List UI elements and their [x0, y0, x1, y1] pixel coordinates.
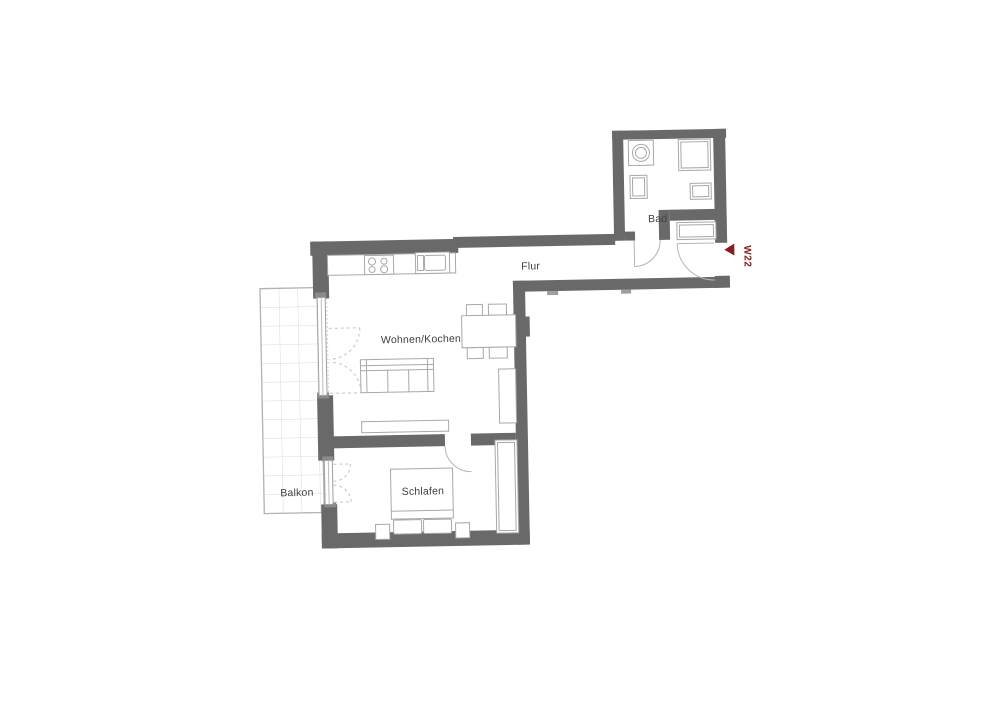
- room-label-balkon: Balkon: [280, 487, 314, 500]
- balcony: [260, 288, 324, 514]
- living-french-door-lower: [329, 362, 361, 394]
- chair: [467, 347, 483, 358]
- living-french-door-upper: [329, 328, 361, 360]
- wall-left-mid: [317, 395, 334, 460]
- bathroom-fixtures: [628, 139, 716, 241]
- unit-marker: W22: [724, 243, 752, 268]
- wall-entry-corner: [715, 276, 730, 288]
- entrance-door-swing: [677, 243, 715, 281]
- dining-table: [462, 315, 517, 348]
- bathroom-door-swing: [634, 240, 660, 266]
- floor-plan-canvas: Bad Flur Wohnen/Kochen Schlafen Balkon W…: [0, 0, 1000, 707]
- sink-drainer: [417, 256, 423, 271]
- wall-neighbor-stub-a: [547, 291, 558, 295]
- burner: [381, 266, 388, 273]
- room-label-schlafen: Schlafen: [402, 485, 445, 498]
- wall-divider-left: [332, 434, 445, 448]
- chair: [489, 347, 507, 358]
- kitchen: [327, 252, 455, 275]
- sideboard: [362, 420, 449, 433]
- wall-bath-bottom-stub: [625, 231, 635, 240]
- bedroom-french-door-upper: [333, 464, 350, 481]
- french-door-swings: [329, 328, 363, 503]
- nightstand-right: [456, 523, 470, 538]
- nightstand-left: [376, 524, 390, 539]
- room-label-bad: Bad: [648, 213, 668, 225]
- sink-basin: [424, 255, 445, 270]
- wall-left-upper: [312, 241, 329, 298]
- pillow-left: [393, 520, 421, 535]
- unit-marker-label: W22: [741, 245, 752, 267]
- room-label-flur: Flur: [521, 260, 540, 272]
- stove: [364, 255, 393, 275]
- living-furniture: [359, 304, 517, 433]
- room-label-wohnen-kochen: Wohnen/Kochen: [381, 333, 461, 347]
- entrance-arrow-icon: [724, 244, 734, 256]
- wall-bath-right: [713, 129, 727, 221]
- burner: [381, 258, 387, 264]
- wall-bath-left: [612, 131, 625, 241]
- shower: [678, 139, 711, 171]
- floor-plan: Bad Flur Wohnen/Kochen Schlafen Balkon W…: [0, 0, 1000, 707]
- chair: [488, 304, 506, 315]
- wall-flur-bottom: [513, 277, 716, 292]
- wall-flur-top: [453, 234, 615, 248]
- wall-right-nub: [524, 317, 530, 337]
- balcony-tiles: [260, 288, 324, 514]
- wall-neighbor-stub-b: [621, 290, 631, 294]
- pillow-right: [423, 519, 451, 534]
- burner: [369, 266, 375, 272]
- bedroom-french-door-lower: [334, 485, 351, 502]
- shelf: [499, 369, 517, 423]
- walls: [308, 129, 735, 549]
- burner: [368, 258, 375, 265]
- sofa: [360, 358, 434, 392]
- chair: [466, 304, 482, 315]
- wall-bath-inner: [670, 209, 716, 221]
- wall-outer-right-upper: [715, 220, 727, 243]
- wall-bath-top: [612, 129, 726, 140]
